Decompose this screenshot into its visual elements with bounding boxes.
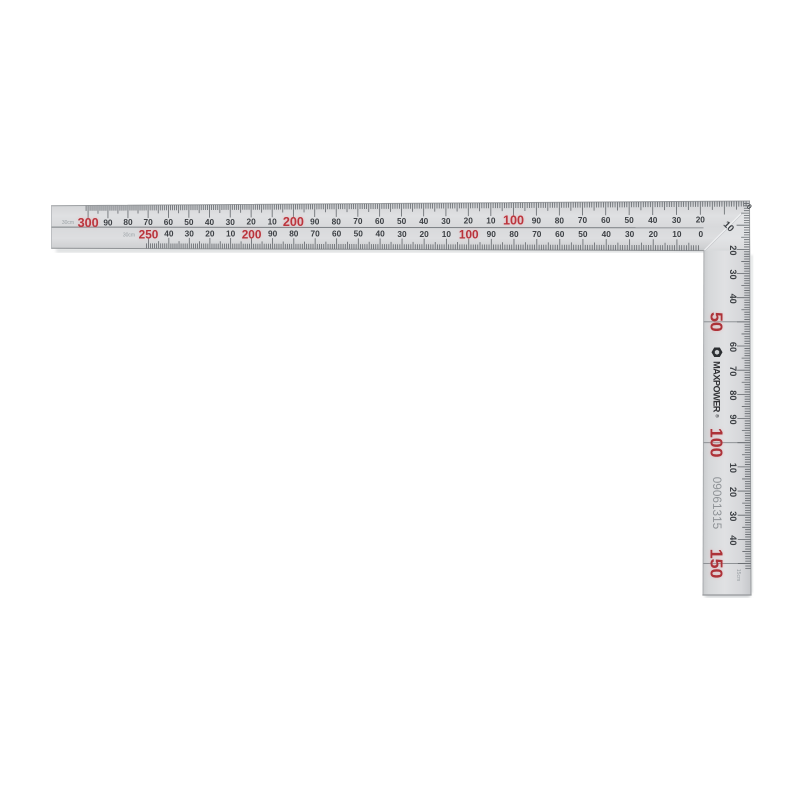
svg-text:90: 90 <box>487 229 497 239</box>
svg-text:30: 30 <box>728 269 738 279</box>
svg-text:200: 200 <box>283 215 304 229</box>
svg-text:10: 10 <box>268 217 278 227</box>
svg-text:90: 90 <box>310 216 320 226</box>
svg-text:30: 30 <box>625 229 635 239</box>
svg-text:70: 70 <box>143 217 153 227</box>
svg-text:80: 80 <box>289 229 299 239</box>
svg-text:80: 80 <box>509 229 519 239</box>
svg-text:80: 80 <box>555 215 565 225</box>
svg-text:90: 90 <box>268 229 278 239</box>
svg-text:20: 20 <box>696 215 706 225</box>
svg-text:50: 50 <box>578 229 588 239</box>
svg-text:60: 60 <box>728 342 738 352</box>
svg-text:90: 90 <box>103 217 113 227</box>
svg-text:20: 20 <box>247 217 257 227</box>
svg-text:30: 30 <box>728 511 738 521</box>
svg-text:20: 20 <box>464 216 474 226</box>
svg-text:40: 40 <box>419 216 429 226</box>
svg-text:10: 10 <box>226 229 236 239</box>
svg-text:80: 80 <box>332 216 342 226</box>
svg-text:60: 60 <box>164 217 174 227</box>
svg-text:80: 80 <box>728 390 738 400</box>
svg-text:60: 60 <box>555 229 565 239</box>
svg-text:70: 70 <box>728 366 738 376</box>
svg-text:300: 300 <box>78 216 99 230</box>
svg-text:150: 150 <box>706 549 726 579</box>
svg-text:40: 40 <box>602 229 612 239</box>
svg-text:20: 20 <box>728 245 738 255</box>
svg-text:10: 10 <box>728 463 738 473</box>
svg-text:30: 30 <box>441 216 451 226</box>
svg-text:30: 30 <box>672 215 682 225</box>
svg-text:50: 50 <box>184 217 194 227</box>
svg-text:40: 40 <box>728 294 738 304</box>
svg-text:50: 50 <box>706 312 726 332</box>
svg-text:10: 10 <box>672 229 682 239</box>
svg-text:10: 10 <box>442 229 452 239</box>
svg-text:30: 30 <box>226 217 236 227</box>
svg-text:90: 90 <box>728 414 738 424</box>
svg-text:0: 0 <box>698 229 703 239</box>
svg-text:70: 70 <box>311 229 321 239</box>
svg-text:40: 40 <box>205 217 215 227</box>
svg-text:60: 60 <box>601 215 611 225</box>
svg-text:50: 50 <box>625 215 635 225</box>
svg-text:60: 60 <box>375 216 385 226</box>
svg-text:70: 70 <box>532 229 542 239</box>
svg-text:40: 40 <box>375 229 385 239</box>
svg-text:20: 20 <box>205 229 215 239</box>
svg-text:30cm: 30cm <box>62 220 74 226</box>
svg-text:40: 40 <box>728 535 738 545</box>
svg-text:30cm: 30cm <box>123 232 135 238</box>
svg-text:200: 200 <box>242 228 262 242</box>
svg-text:09061315: 09061315 <box>710 477 724 530</box>
svg-text:100: 100 <box>706 428 726 458</box>
svg-text:15cm: 15cm <box>735 569 741 581</box>
svg-text:70: 70 <box>578 215 588 225</box>
svg-text:20: 20 <box>728 487 738 497</box>
svg-text:50: 50 <box>354 229 364 239</box>
svg-text:20: 20 <box>649 229 659 239</box>
svg-text:10: 10 <box>486 216 496 226</box>
svg-text:50: 50 <box>397 216 407 226</box>
svg-text:30: 30 <box>185 229 195 239</box>
svg-text:100: 100 <box>503 214 524 228</box>
svg-text:70: 70 <box>353 216 363 226</box>
svg-text:MAXPOWER: MAXPOWER <box>712 361 722 413</box>
svg-text:100: 100 <box>459 228 479 242</box>
svg-text:90: 90 <box>532 215 542 225</box>
svg-text:20: 20 <box>420 229 430 239</box>
svg-text:80: 80 <box>123 217 133 227</box>
svg-text:40: 40 <box>648 215 658 225</box>
svg-text:250: 250 <box>139 227 159 241</box>
svg-text:60: 60 <box>332 229 342 239</box>
svg-text:30: 30 <box>397 229 407 239</box>
svg-text:40: 40 <box>164 229 174 239</box>
